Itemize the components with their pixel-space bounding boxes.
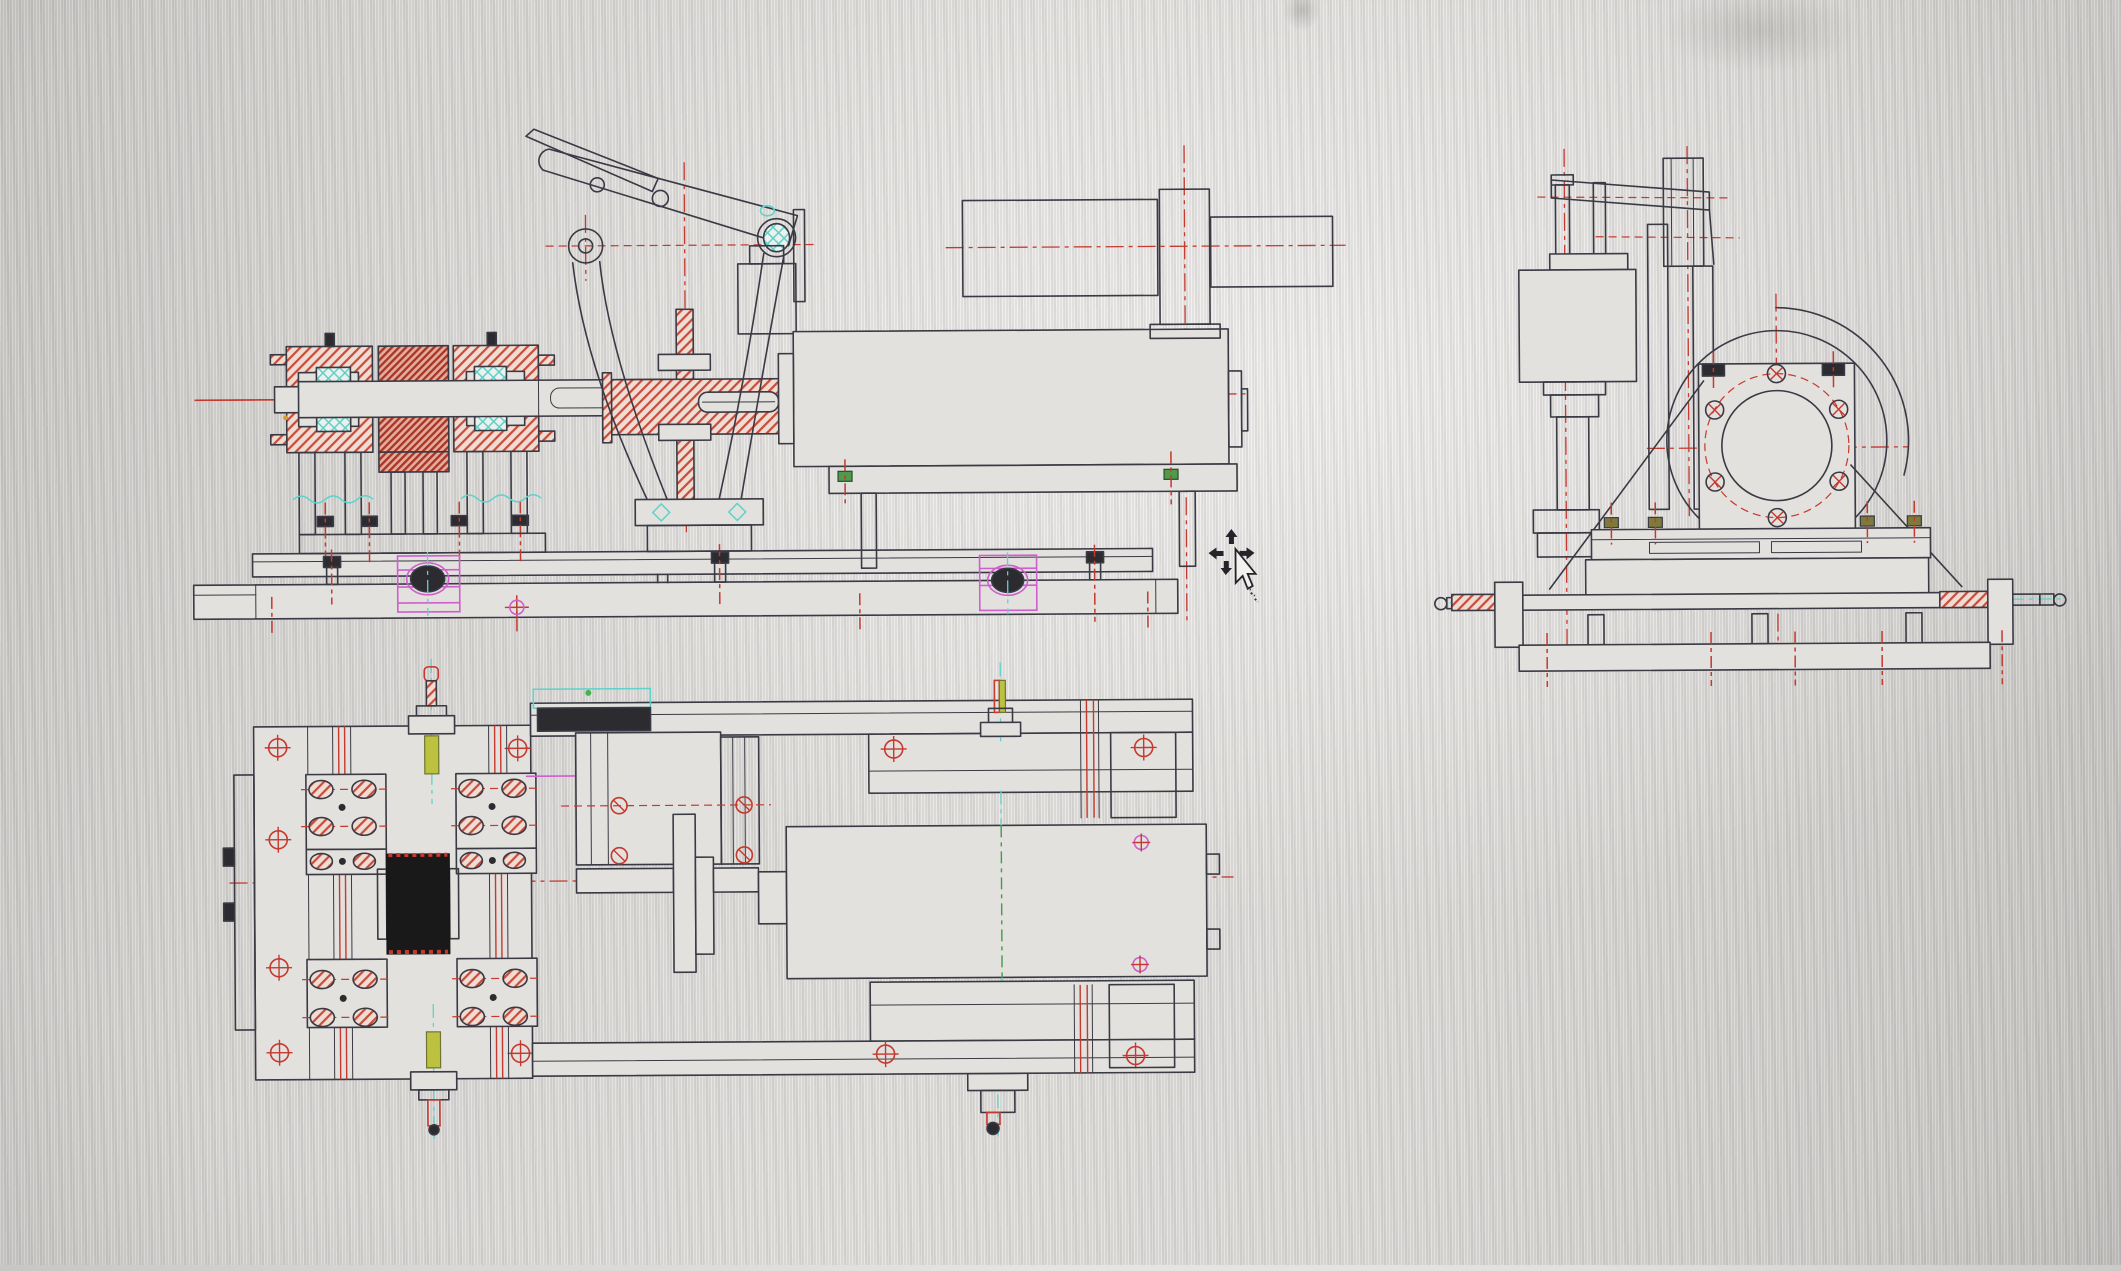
lever-arm[interactable] (526, 128, 798, 248)
bolt-hole[interactable] (736, 847, 752, 863)
bearing-block-lower-left[interactable] (302, 959, 392, 1028)
side-bottom-plate[interactable] (1519, 612, 2002, 687)
cylinder-block[interactable] (738, 246, 797, 334)
selected-line-cyan[interactable] (533, 689, 650, 732)
bearing-block-upper-left[interactable] (301, 774, 392, 875)
bearing-housing-right[interactable] (453, 332, 555, 534)
bearing-block-lower-right[interactable] (452, 958, 542, 1027)
spacer-block[interactable] (378, 346, 449, 534)
motor-top-box-right[interactable] (1210, 216, 1332, 287)
photographed-monitor-screen: { "canvas": { "background_color": "#dddb… (0, 0, 2121, 1265)
move-pan-cursor (1208, 529, 1257, 602)
through-rod[interactable] (1435, 591, 2066, 611)
clevis-block[interactable] (635, 499, 763, 552)
rail-lower[interactable] (532, 980, 1195, 1076)
drawing-sheet[interactable] (0, 0, 2121, 1271)
top-plan-view[interactable] (222, 591, 1235, 1145)
motor-front[interactable] (778, 329, 1248, 467)
coupling-plan-dark[interactable] (377, 854, 459, 954)
bearing-housing-left[interactable] (270, 333, 373, 535)
cad-canvas[interactable] (0, 0, 2121, 1271)
bearing-block-upper-right[interactable] (451, 773, 542, 874)
flange-plate[interactable] (1698, 351, 1855, 554)
coupling-brake-assembly[interactable] (602, 309, 794, 520)
gearbox-block-plan[interactable] (561, 732, 772, 865)
lever-right-pivot[interactable] (757, 206, 805, 302)
front-section-view[interactable] (191, 124, 1348, 635)
right-side-view[interactable] (1432, 144, 2066, 688)
